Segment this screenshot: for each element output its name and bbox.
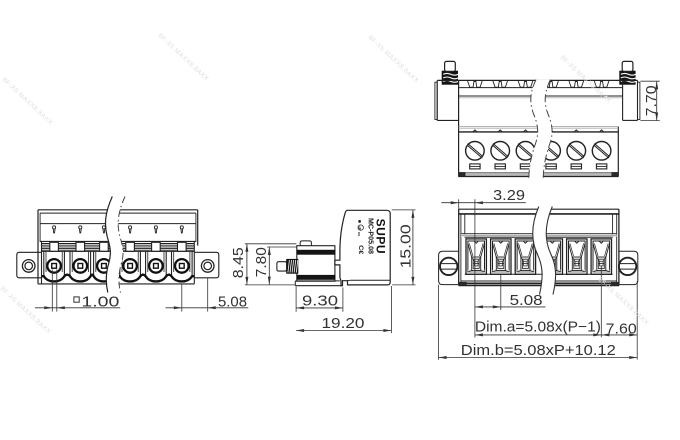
svg-text:8.45: 8.45 bbox=[230, 247, 247, 278]
svg-text:Dim.b=5.08xP+10.12: Dim.b=5.08xP+10.12 bbox=[461, 342, 616, 359]
svg-text:3.29: 3.29 bbox=[493, 187, 525, 204]
svg-text:C€: C€ bbox=[357, 245, 364, 255]
svg-text:7.60: 7.60 bbox=[606, 320, 637, 337]
svg-text:19.20: 19.20 bbox=[322, 315, 365, 332]
svg-text:us: us bbox=[357, 232, 361, 236]
svg-text:7.80: 7.80 bbox=[253, 247, 270, 277]
svg-text:15.00: 15.00 bbox=[398, 224, 415, 268]
svg-text:MC-P05.08: MC-P05.08 bbox=[366, 218, 375, 254]
svg-text:9.30: 9.30 bbox=[302, 293, 338, 310]
svg-text:5.08: 5.08 bbox=[218, 293, 247, 310]
svg-text:7.70: 7.70 bbox=[643, 85, 660, 116]
svg-text:5.08: 5.08 bbox=[510, 292, 543, 309]
svg-text:uR: uR bbox=[358, 226, 362, 231]
svg-text:Dim.a=5.08x(P−1): Dim.a=5.08x(P−1) bbox=[475, 318, 601, 335]
svg-text:1.00: 1.00 bbox=[81, 293, 119, 310]
